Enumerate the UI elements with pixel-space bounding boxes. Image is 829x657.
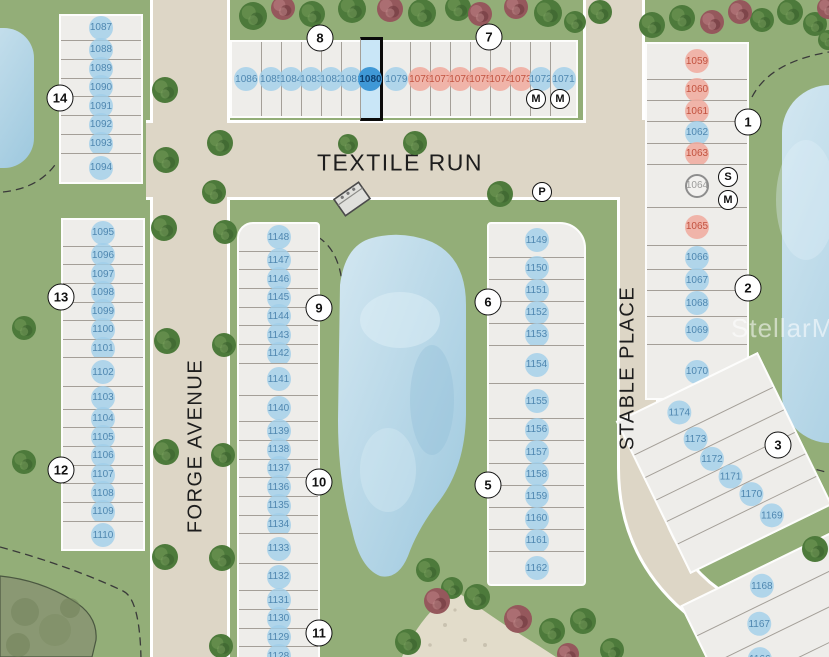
lot-1148[interactable]: 1148 xyxy=(239,224,318,251)
lot-1063[interactable]: 1063 xyxy=(647,143,747,164)
lot-1152[interactable]: 1152 xyxy=(489,301,584,323)
lot-1075[interactable]: 1075 xyxy=(470,42,490,116)
lot-1140[interactable]: 1140 xyxy=(239,395,318,422)
pond-east xyxy=(782,85,829,443)
street-label-forge-avenue: FORGE AVENUE xyxy=(185,359,208,533)
lot-number-badge: 1133 xyxy=(267,537,291,561)
lot-1132[interactable]: 1132 xyxy=(239,563,318,591)
lot-1149[interactable]: 1149 xyxy=(489,224,584,257)
lot-1076[interactable]: 1076 xyxy=(450,42,470,116)
street-label-stable-place: STABLE PLACE xyxy=(617,286,640,450)
lot-number-badge: 1157 xyxy=(525,440,549,464)
lot-1158[interactable]: 1158 xyxy=(489,463,584,485)
lot-number-badge: 1161 xyxy=(525,529,549,553)
lot-number-badge: 1174 xyxy=(667,401,691,425)
section-marker-8: 8 xyxy=(307,25,334,52)
lot-1079[interactable]: 1079 xyxy=(382,42,410,116)
lot-number-badge: 1149 xyxy=(525,228,549,252)
lot-1059[interactable]: 1059 xyxy=(647,44,747,79)
poi-marker-m: M xyxy=(550,89,570,109)
lot-number-badge: 1156 xyxy=(525,418,549,442)
lot-number-badge: 1087 xyxy=(89,16,113,40)
poi-marker-p: P xyxy=(532,182,552,202)
lot-number-badge: 1059 xyxy=(685,49,709,73)
lot-1153[interactable]: 1153 xyxy=(489,323,584,345)
lot-1151[interactable]: 1151 xyxy=(489,279,584,301)
lot-1077[interactable]: 1077 xyxy=(430,42,450,116)
lot-number-badge: 1150 xyxy=(525,256,549,280)
lot-number-badge: 1154 xyxy=(525,353,549,377)
lot-number-badge: 1158 xyxy=(525,462,549,486)
lot-1157[interactable]: 1157 xyxy=(489,440,584,462)
lot-number-badge: 1068 xyxy=(685,291,709,315)
section-marker-9: 9 xyxy=(306,295,333,322)
section-marker-14: 14 xyxy=(47,85,74,112)
lot-1067[interactable]: 1067 xyxy=(647,269,747,290)
lot-number-badge: 1132 xyxy=(267,565,291,589)
lot-1094[interactable]: 1094 xyxy=(61,153,141,182)
lot-number-badge: 1071 xyxy=(552,67,576,91)
lot-number-badge: 1063 xyxy=(685,142,709,166)
lot-1128[interactable]: 1128 xyxy=(239,646,318,657)
section-marker-3: 3 xyxy=(765,432,792,459)
lot-1095[interactable]: 1095 xyxy=(63,220,143,246)
lot-number-badge: 1153 xyxy=(525,323,549,347)
section-marker-6: 6 xyxy=(475,289,502,316)
lot-group-textile-run-row: 1086108510841083108210811080107910781077… xyxy=(230,40,578,118)
lot-1061[interactable]: 1061 xyxy=(647,100,747,121)
lot-number-badge: 1162 xyxy=(525,556,549,580)
lot-number-badge: 1166 xyxy=(747,647,771,657)
lot-1101[interactable]: 1101 xyxy=(63,339,143,358)
lot-1082[interactable]: 1082 xyxy=(321,42,341,116)
street-label-textile-run: TEXTILE RUN xyxy=(317,150,483,177)
lot-number-badge: 1169 xyxy=(760,503,784,527)
lot-group-center-east-column: 1149115011511152115311541155115611571158… xyxy=(487,222,586,586)
lot-group-east-column: 1059106010611062106310641065106610671068… xyxy=(645,42,749,400)
lot-1068[interactable]: 1068 xyxy=(647,290,747,315)
poi-marker-m: M xyxy=(526,89,546,109)
lot-number-badge: 1168 xyxy=(750,574,774,598)
lot-number-badge: 1155 xyxy=(525,389,549,413)
lot-group-west-column: 1095109610971098109911001101110211031104… xyxy=(61,218,145,551)
lot-1134[interactable]: 1134 xyxy=(239,515,318,534)
section-marker-13: 13 xyxy=(48,284,75,311)
lot-1102[interactable]: 1102 xyxy=(63,357,143,385)
lot-1155[interactable]: 1155 xyxy=(489,383,584,418)
lot-number-badge: 1086 xyxy=(234,67,258,91)
lot-number-badge: 1079 xyxy=(384,67,408,91)
section-marker-1: 1 xyxy=(735,109,762,136)
lot-number-badge: 1069 xyxy=(685,318,709,342)
lot-1162[interactable]: 1162 xyxy=(489,551,584,584)
lot-1154[interactable]: 1154 xyxy=(489,345,584,383)
lot-1087[interactable]: 1087 xyxy=(61,16,141,40)
lot-number-badge: 1159 xyxy=(525,484,549,508)
section-marker-11: 11 xyxy=(306,620,333,647)
poi-marker-s: S xyxy=(718,167,738,187)
lot-1141[interactable]: 1141 xyxy=(239,363,318,395)
pond-northwest xyxy=(0,28,34,168)
lot-1093[interactable]: 1093 xyxy=(61,134,141,153)
lot-number-badge: 1128 xyxy=(267,644,291,657)
lot-number-badge: 1095 xyxy=(91,221,115,245)
lot-1084[interactable]: 1084 xyxy=(281,42,301,116)
lot-1066[interactable]: 1066 xyxy=(647,245,747,268)
section-marker-2: 2 xyxy=(735,275,762,302)
lot-1133[interactable]: 1133 xyxy=(239,533,318,562)
lot-number-badge: 1066 xyxy=(685,246,709,270)
lot-1062[interactable]: 1062 xyxy=(647,121,747,142)
lot-number-badge: 1140 xyxy=(267,396,291,420)
section-marker-10: 10 xyxy=(306,469,333,496)
lot-1109[interactable]: 1109 xyxy=(63,502,143,521)
lot-1150[interactable]: 1150 xyxy=(489,257,584,279)
lot-1156[interactable]: 1156 xyxy=(489,418,584,440)
lot-1142[interactable]: 1142 xyxy=(239,344,318,363)
lot-number-badge: 1102 xyxy=(91,360,115,384)
lot-number-badge: 1080 xyxy=(358,67,382,91)
lot-1065[interactable]: 1065 xyxy=(647,207,747,246)
lot-number-badge: 1141 xyxy=(267,367,291,391)
lot-number-badge: 1167 xyxy=(747,612,771,636)
lot-1103[interactable]: 1103 xyxy=(63,386,143,409)
lot-number-badge: 1072 xyxy=(529,67,553,91)
lot-1110[interactable]: 1110 xyxy=(63,521,143,549)
lot-number-badge: 1110 xyxy=(91,523,115,547)
lot-number-badge: 1160 xyxy=(525,507,549,531)
section-marker-5: 5 xyxy=(475,472,502,499)
lot-1159[interactable]: 1159 xyxy=(489,485,584,507)
lot-1086[interactable]: 1086 xyxy=(232,42,261,116)
lot-group-center-west-column: 1148114711461145114411431142114111401139… xyxy=(237,222,320,657)
lot-1160[interactable]: 1160 xyxy=(489,507,584,529)
section-marker-12: 12 xyxy=(48,457,75,484)
lot-number-badge: 1064 xyxy=(685,174,709,198)
section-marker-7: 7 xyxy=(476,24,503,51)
lot-1161[interactable]: 1161 xyxy=(489,529,584,551)
lot-1085[interactable]: 1085 xyxy=(261,42,281,116)
lot-number-badge: 1148 xyxy=(267,225,291,249)
lot-1080[interactable]: 1080 xyxy=(360,37,383,121)
lot-number-badge: 1151 xyxy=(525,279,549,303)
lot-1078[interactable]: 1078 xyxy=(410,42,430,116)
lot-number-badge: 1065 xyxy=(685,215,709,239)
site-plan-map: TEXTILE RUN FORGE AVENUE STABLE PLACE St… xyxy=(0,0,829,657)
lot-number-badge: 1067 xyxy=(685,268,709,292)
lot-1083[interactable]: 1083 xyxy=(301,42,321,116)
lot-number-badge: 1094 xyxy=(89,156,113,180)
lot-1074[interactable]: 1074 xyxy=(490,42,510,116)
lot-1060[interactable]: 1060 xyxy=(647,79,747,100)
stellar-mls-watermark: StellarMLS xyxy=(731,313,829,344)
poi-marker-m: M xyxy=(718,190,738,210)
lot-number-badge: 1152 xyxy=(525,301,549,325)
